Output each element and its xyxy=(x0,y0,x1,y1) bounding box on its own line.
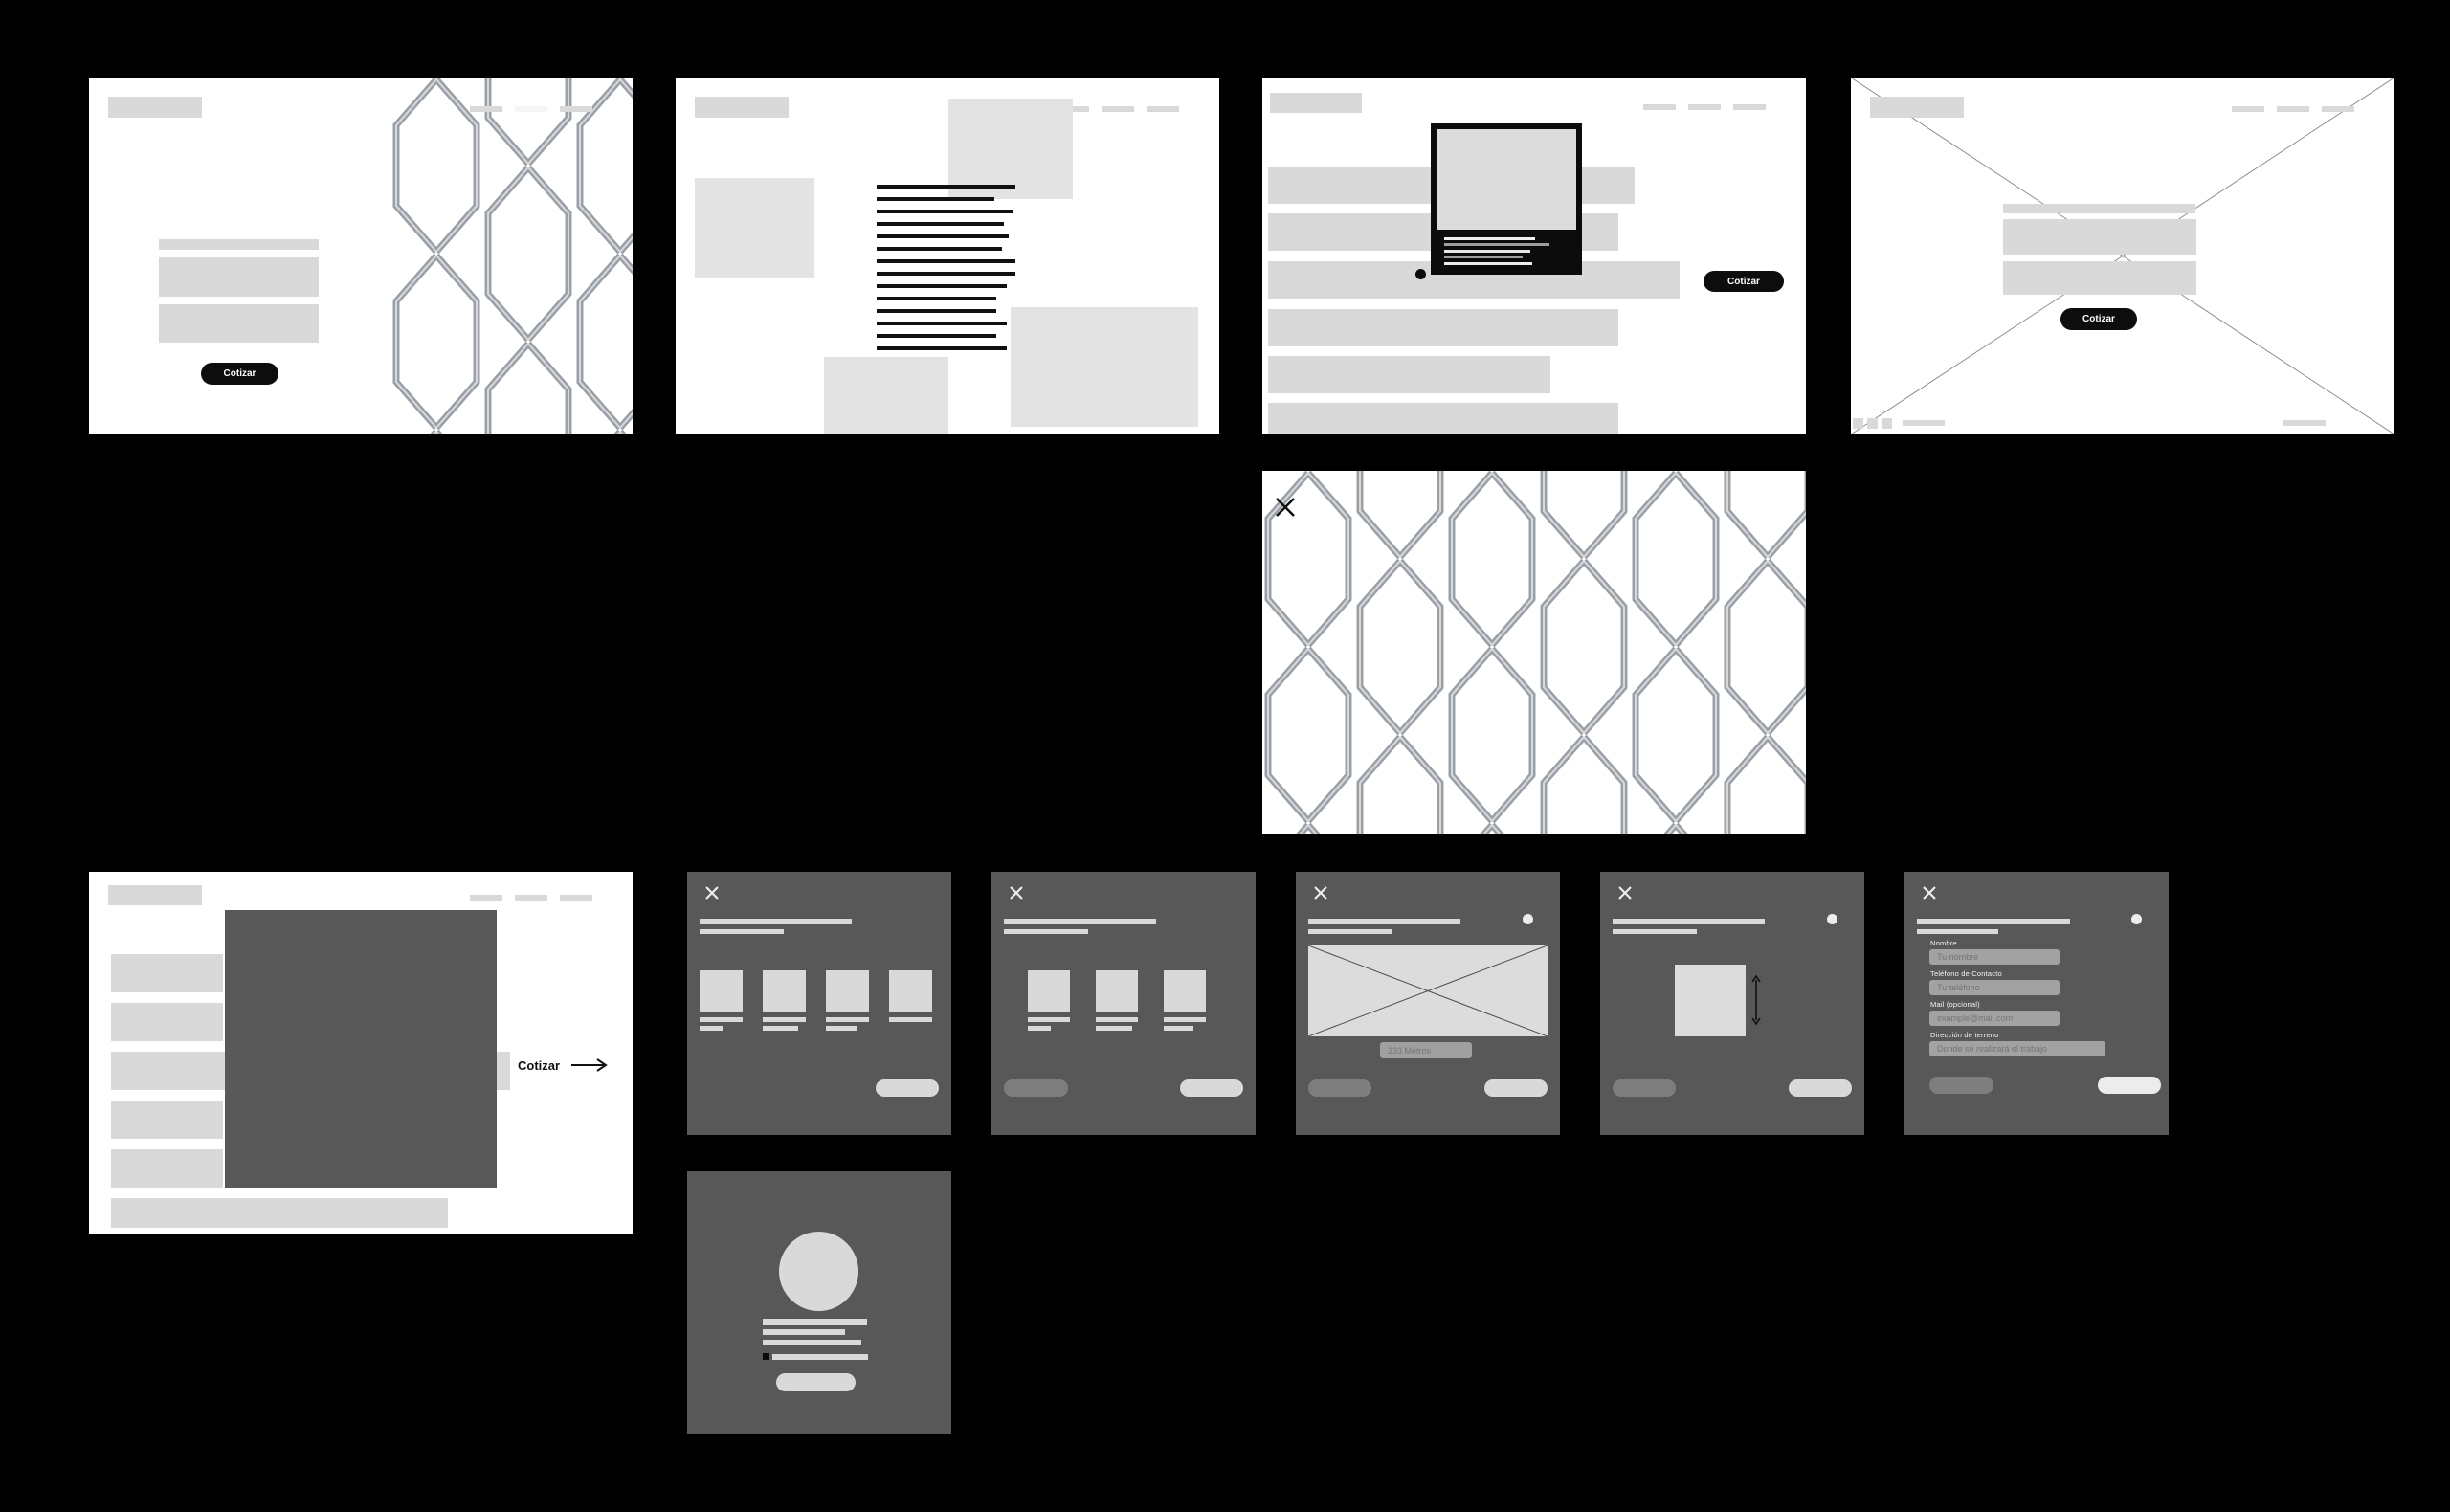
back-button[interactable] xyxy=(1613,1079,1676,1097)
nav-link-placeholder[interactable] xyxy=(1733,104,1766,110)
modal-subtitle-placeholder xyxy=(700,929,784,934)
modal-title-placeholder xyxy=(1917,919,2070,924)
thumb-caption xyxy=(1164,1017,1206,1022)
footer-bar-placeholder xyxy=(111,1198,448,1228)
image-placeholder-crossed xyxy=(1308,945,1548,1036)
right-arrow-icon xyxy=(571,1058,612,1072)
text-row-placeholder xyxy=(1268,309,1618,346)
address-input[interactable] xyxy=(1929,1041,2105,1056)
close-icon[interactable] xyxy=(1922,885,1937,901)
nav-link-placeholder[interactable] xyxy=(1147,106,1179,112)
cotizar-button[interactable]: Cotizar xyxy=(201,363,278,385)
text-block-placeholder xyxy=(159,304,319,343)
product-image-placeholder xyxy=(225,910,497,1188)
step-indicator-dot xyxy=(1827,914,1837,924)
back-button[interactable] xyxy=(1929,1077,1993,1094)
caption-line xyxy=(1444,250,1530,253)
close-icon[interactable] xyxy=(1009,885,1024,901)
caption-line xyxy=(1444,237,1535,240)
text-block-placeholder xyxy=(2003,219,2196,255)
cursor-dot xyxy=(1415,269,1426,279)
footer-square xyxy=(1853,418,1863,429)
modal-measure xyxy=(1296,872,1560,1135)
footer-square xyxy=(1867,418,1878,429)
modal-title-placeholder xyxy=(700,919,852,924)
thumb-subcaption xyxy=(1096,1026,1132,1031)
caption-line xyxy=(1444,262,1532,265)
logo-placeholder xyxy=(108,97,202,118)
modal-options-three xyxy=(991,872,1256,1135)
thumb-caption xyxy=(763,1017,806,1022)
modal-title-placeholder xyxy=(1308,919,1460,924)
text-row-placeholder xyxy=(1268,403,1618,434)
option-thumbnail[interactable] xyxy=(1096,970,1138,1012)
cotizar-label: Cotizar xyxy=(518,1058,560,1073)
text-block-placeholder xyxy=(2003,261,2196,295)
logo-placeholder xyxy=(1270,93,1362,113)
photo-placeholder xyxy=(1437,129,1576,230)
logo-placeholder xyxy=(695,97,789,118)
close-icon[interactable] xyxy=(1274,496,1297,519)
headline-placeholder xyxy=(159,239,319,250)
logo-placeholder xyxy=(1870,97,1964,118)
back-button[interactable] xyxy=(1308,1079,1371,1097)
thumb-caption xyxy=(700,1017,743,1022)
modal-height xyxy=(1600,872,1864,1135)
fence-photo xyxy=(390,78,633,434)
footer-square xyxy=(1882,418,1892,429)
placeholder-cross-lines xyxy=(1851,78,2394,434)
cotizar-button[interactable]: Cotizar xyxy=(1704,271,1784,292)
image-placeholder xyxy=(824,357,948,434)
message-line xyxy=(763,1319,867,1325)
nav-link-placeholder[interactable] xyxy=(470,106,502,112)
fence-photo-full xyxy=(1262,471,1806,834)
checkbox-square[interactable] xyxy=(763,1353,769,1360)
modal-subtitle-placeholder xyxy=(1308,929,1392,934)
frame-detail-page: Cotizar xyxy=(89,872,633,1234)
frame-content-page xyxy=(676,78,1219,434)
next-button[interactable] xyxy=(1180,1079,1243,1097)
close-icon[interactable] xyxy=(704,885,720,901)
nav-link-placeholder[interactable] xyxy=(1643,104,1676,110)
message-line xyxy=(772,1354,868,1360)
cotizar-arrow-button[interactable]: Cotizar xyxy=(518,1056,612,1074)
option-thumbnail[interactable] xyxy=(1028,970,1070,1012)
list-row-placeholder xyxy=(111,1149,223,1188)
step-indicator-dot xyxy=(2131,914,2142,924)
polaroid-photo-card xyxy=(1431,123,1582,275)
option-thumbnail[interactable] xyxy=(826,970,869,1012)
option-thumbnail[interactable] xyxy=(763,970,806,1012)
nav-link-placeholder[interactable] xyxy=(470,895,502,901)
logo-placeholder xyxy=(108,885,202,905)
headline-placeholder xyxy=(2003,204,2195,213)
thumb-subcaption xyxy=(826,1026,857,1031)
cotizar-button[interactable]: Cotizar xyxy=(2060,308,2137,330)
thumb-subcaption xyxy=(1164,1026,1193,1031)
name-label: Nombre xyxy=(1930,939,1957,947)
option-thumbnail[interactable] xyxy=(700,970,743,1012)
height-sample-square xyxy=(1675,965,1746,1036)
close-icon[interactable] xyxy=(1617,885,1633,901)
submit-button[interactable] xyxy=(2098,1077,2161,1094)
frame-product-page: Cotizar xyxy=(1262,78,1806,434)
close-icon[interactable] xyxy=(1313,885,1328,901)
option-thumbnail[interactable] xyxy=(889,970,932,1012)
footer-link-placeholder xyxy=(2283,420,2326,426)
thumb-subcaption xyxy=(1028,1026,1051,1031)
back-button[interactable] xyxy=(1004,1079,1068,1097)
modal-options-four xyxy=(687,872,951,1135)
thumb-subcaption xyxy=(700,1026,723,1031)
thumb-caption xyxy=(826,1017,869,1022)
next-button[interactable] xyxy=(876,1079,939,1097)
nav-link-placeholder[interactable] xyxy=(2322,106,2354,112)
nav-link-placeholder[interactable] xyxy=(2232,106,2264,112)
nav-link-placeholder[interactable] xyxy=(560,106,592,112)
mail-input[interactable] xyxy=(1929,1011,2060,1026)
thumb-caption xyxy=(1028,1017,1070,1022)
confirm-button[interactable] xyxy=(776,1373,856,1391)
message-line xyxy=(763,1329,845,1335)
modal-subtitle-placeholder xyxy=(1004,929,1088,934)
nav-link-placeholder[interactable] xyxy=(515,895,547,901)
modal-contact-form: Nombre Teléfono de Contacto Mail (opcion… xyxy=(1904,872,2169,1135)
design-canvas: Cotizar xyxy=(0,0,2450,1512)
text-row-placeholder xyxy=(1268,356,1550,393)
modal-title-placeholder xyxy=(1613,919,1765,924)
name-input[interactable] xyxy=(1929,949,2060,965)
footer-link-placeholder xyxy=(1903,420,1945,426)
next-button[interactable] xyxy=(1484,1079,1548,1097)
list-row-placeholder xyxy=(111,954,223,992)
phone-label: Teléfono de Contacto xyxy=(1930,969,2002,978)
thumb-caption xyxy=(889,1017,932,1022)
address-label: Dirección de terreno xyxy=(1930,1031,1999,1039)
modal-subtitle-placeholder xyxy=(1613,929,1697,934)
text-block-placeholder xyxy=(159,257,319,297)
nav-link-placeholder[interactable] xyxy=(560,895,592,901)
paragraph-lines xyxy=(877,185,1015,350)
nav-link-placeholder[interactable] xyxy=(515,106,547,112)
modal-subtitle-placeholder xyxy=(1917,929,1998,934)
thumb-caption xyxy=(1096,1017,1138,1022)
message-line xyxy=(763,1340,861,1345)
nav-link-placeholder[interactable] xyxy=(1688,104,1721,110)
option-thumbnail[interactable] xyxy=(1164,970,1206,1012)
phone-input[interactable] xyxy=(1929,980,2060,995)
image-placeholder xyxy=(1011,307,1198,427)
image-placeholder xyxy=(695,178,814,278)
nav-link-placeholder[interactable] xyxy=(1102,106,1134,112)
next-button[interactable] xyxy=(1789,1079,1852,1097)
caption-line xyxy=(1444,256,1523,258)
frame-placeholder-page: Cotizar xyxy=(1851,78,2394,434)
vertical-resize-arrow[interactable] xyxy=(1749,975,1763,1025)
modal-title-placeholder xyxy=(1004,919,1156,924)
thumb-subcaption xyxy=(763,1026,798,1031)
list-row-placeholder xyxy=(111,1003,223,1041)
caption-line xyxy=(1444,243,1549,246)
modal-confirmation xyxy=(687,1171,951,1434)
frame-fence-lightbox xyxy=(1262,471,1806,834)
list-row-placeholder xyxy=(111,1101,223,1139)
step-indicator-dot xyxy=(1523,914,1533,924)
frame-hero-page: Cotizar xyxy=(89,78,633,434)
avatar-circle-placeholder xyxy=(779,1232,858,1311)
nav-link-placeholder[interactable] xyxy=(2277,106,2309,112)
meters-input[interactable] xyxy=(1380,1042,1472,1058)
mail-label: Mail (opcional) xyxy=(1930,1000,1980,1009)
